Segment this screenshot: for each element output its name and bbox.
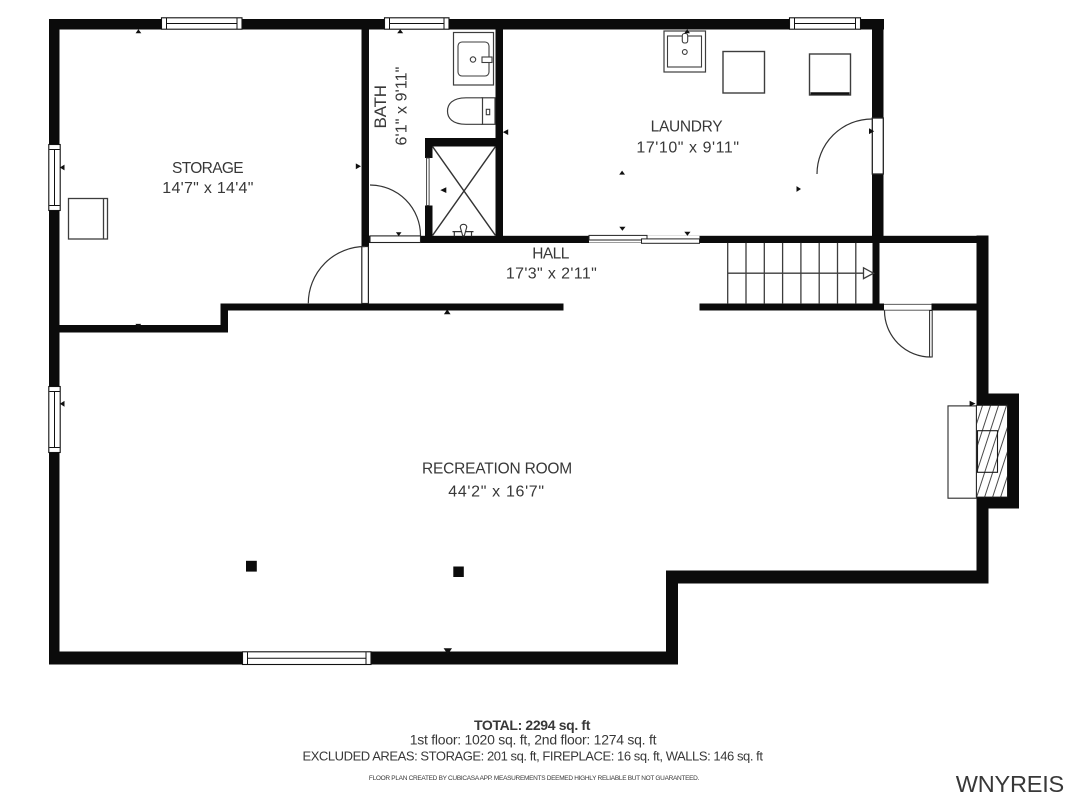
svg-text:6'1" x 9'11": 6'1" x 9'11" [394, 67, 411, 146]
svg-text:EXCLUDED AREAS: STORAGE: 201 s: EXCLUDED AREAS: STORAGE: 201 sq. ft, FIR… [302, 749, 763, 764]
svg-text:FLOOR PLAN CREATED BY CUBICASA: FLOOR PLAN CREATED BY CUBICASA APP. MEAS… [369, 775, 700, 782]
svg-text:BATH: BATH [371, 85, 390, 128]
svg-text:17'10" x 9'11": 17'10" x 9'11" [636, 140, 739, 157]
svg-text:17'3" x 2'11": 17'3" x 2'11" [506, 266, 597, 283]
svg-text:14'7" x 14'4": 14'7" x 14'4" [162, 180, 253, 197]
svg-text:WNYREIS: WNYREIS [956, 771, 1064, 797]
svg-text:LAUNDRY: LAUNDRY [651, 119, 723, 136]
svg-text:RECREATION ROOM: RECREATION ROOM [422, 461, 572, 478]
svg-text:1st floor: 1020 sq. ft, 2nd fl: 1st floor: 1020 sq. ft, 2nd floor: 1274 … [410, 732, 657, 748]
svg-text:HALL: HALL [532, 246, 570, 263]
svg-text:STORAGE: STORAGE [172, 160, 243, 177]
svg-text:44'2" x 16'7": 44'2" x 16'7" [448, 484, 544, 501]
